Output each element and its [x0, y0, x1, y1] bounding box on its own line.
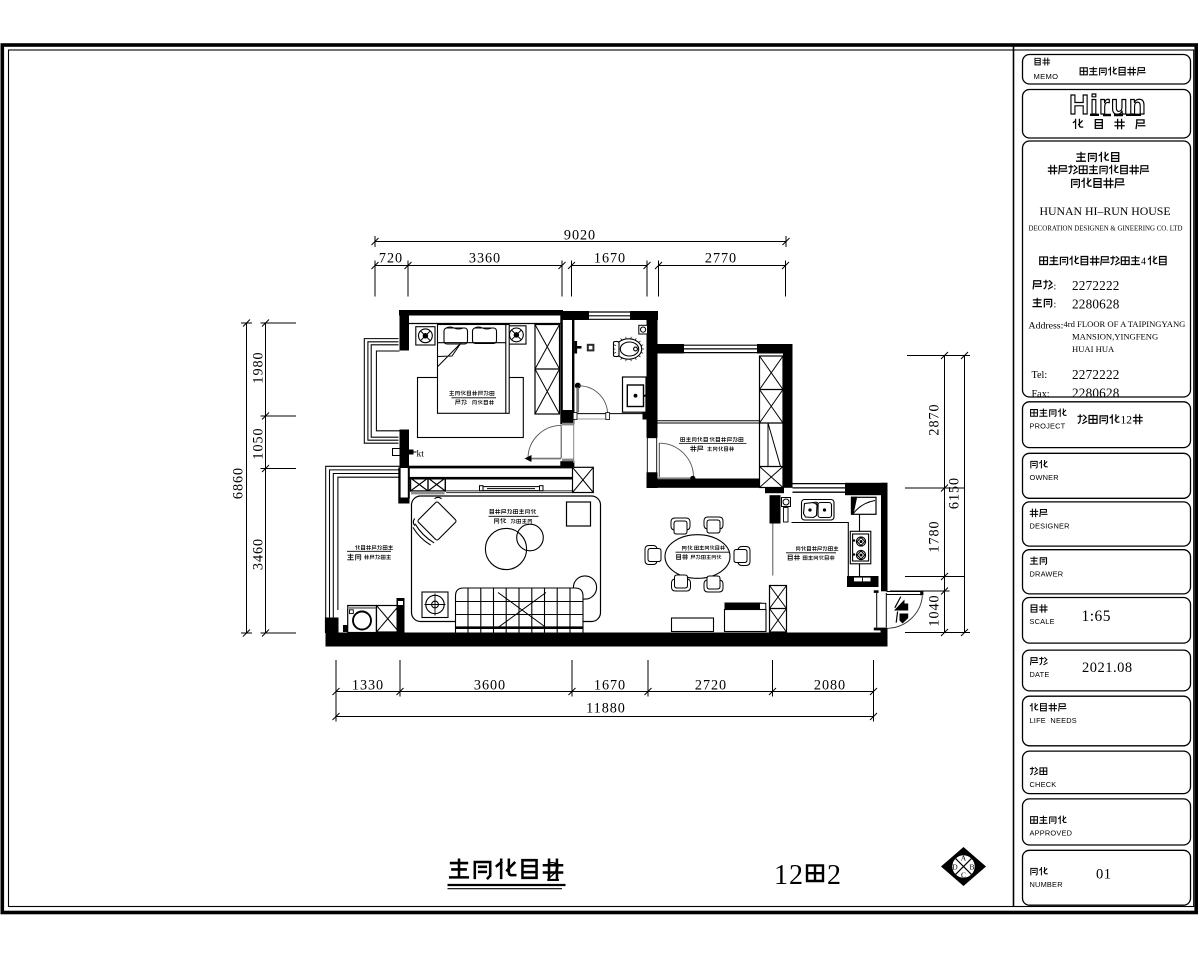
svg-text:1040: 1040: [927, 594, 943, 626]
svg-text:3460: 3460: [251, 538, 267, 570]
svg-text:kt: kt: [417, 450, 425, 460]
svg-text::: :: [1054, 300, 1057, 311]
svg-text:3360: 3360: [469, 251, 501, 267]
svg-text:C: C: [961, 871, 966, 880]
svg-text:CHECK: CHECK: [1030, 780, 1057, 789]
svg-text:Tel:: Tel:: [1032, 370, 1048, 381]
svg-text:6150: 6150: [947, 477, 963, 509]
svg-text:D: D: [952, 862, 958, 871]
svg-text:12: 12: [1121, 415, 1133, 427]
svg-text:2870: 2870: [927, 403, 943, 435]
svg-text:MEMO: MEMO: [1034, 72, 1059, 81]
svg-text:OWNER: OWNER: [1030, 473, 1059, 482]
svg-text:MANSION,YINGFENG: MANSION,YINGFENG: [1072, 332, 1158, 342]
svg-text:HUAI HUA: HUAI HUA: [1072, 344, 1115, 354]
svg-text:2272222: 2272222: [1072, 367, 1120, 382]
svg-text:Fax:: Fax:: [1032, 389, 1050, 400]
svg-text:4: 4: [1141, 257, 1146, 268]
svg-text:LIFE NEEDS: LIFE NEEDS: [1030, 716, 1077, 725]
svg-text:12: 12: [774, 860, 804, 891]
svg-text:PROJECT: PROJECT: [1030, 422, 1066, 431]
svg-text:4rd FLOOR OF A TAIPINGYANG: 4rd FLOOR OF A TAIPINGYANG: [1064, 319, 1186, 329]
svg-text:2280628: 2280628: [1072, 297, 1120, 312]
svg-text:DESIGNER: DESIGNER: [1030, 522, 1070, 531]
svg-text:2272222: 2272222: [1072, 278, 1120, 293]
svg-text:2280628: 2280628: [1072, 386, 1120, 401]
svg-text:DRAWER: DRAWER: [1030, 569, 1064, 578]
svg-text:NUMBER: NUMBER: [1030, 880, 1063, 889]
svg-text:SCALE: SCALE: [1030, 617, 1055, 626]
svg-text:DATE: DATE: [1030, 670, 1050, 679]
svg-text:DECORATION DESIGNEN & GINEERIN: DECORATION DESIGNEN & GINEERING CO. LTD: [1028, 226, 1182, 233]
svg-text:720: 720: [379, 251, 403, 267]
svg-text:A: A: [961, 854, 967, 863]
svg-text:2: 2: [827, 860, 841, 891]
svg-text:2770: 2770: [705, 251, 737, 267]
svg-text:6860: 6860: [231, 467, 247, 499]
svg-text:11880: 11880: [586, 701, 626, 717]
svg-text:1:65: 1:65: [1082, 608, 1112, 625]
svg-text:1980: 1980: [251, 351, 267, 383]
svg-text:01: 01: [1096, 867, 1112, 883]
svg-text:1670: 1670: [594, 251, 626, 267]
svg-text::: :: [1054, 282, 1057, 293]
svg-text:1050: 1050: [251, 427, 267, 459]
svg-text:1780: 1780: [927, 520, 943, 552]
svg-text:2: 2: [546, 856, 561, 888]
svg-text:2021.08: 2021.08: [1082, 660, 1133, 676]
svg-text:HUNAN HI–RUN HOUSE: HUNAN HI–RUN HOUSE: [1039, 204, 1170, 218]
svg-text:APPROVED: APPROVED: [1030, 829, 1073, 838]
svg-text:Address:: Address:: [1029, 321, 1064, 332]
svg-text:B: B: [969, 862, 974, 871]
